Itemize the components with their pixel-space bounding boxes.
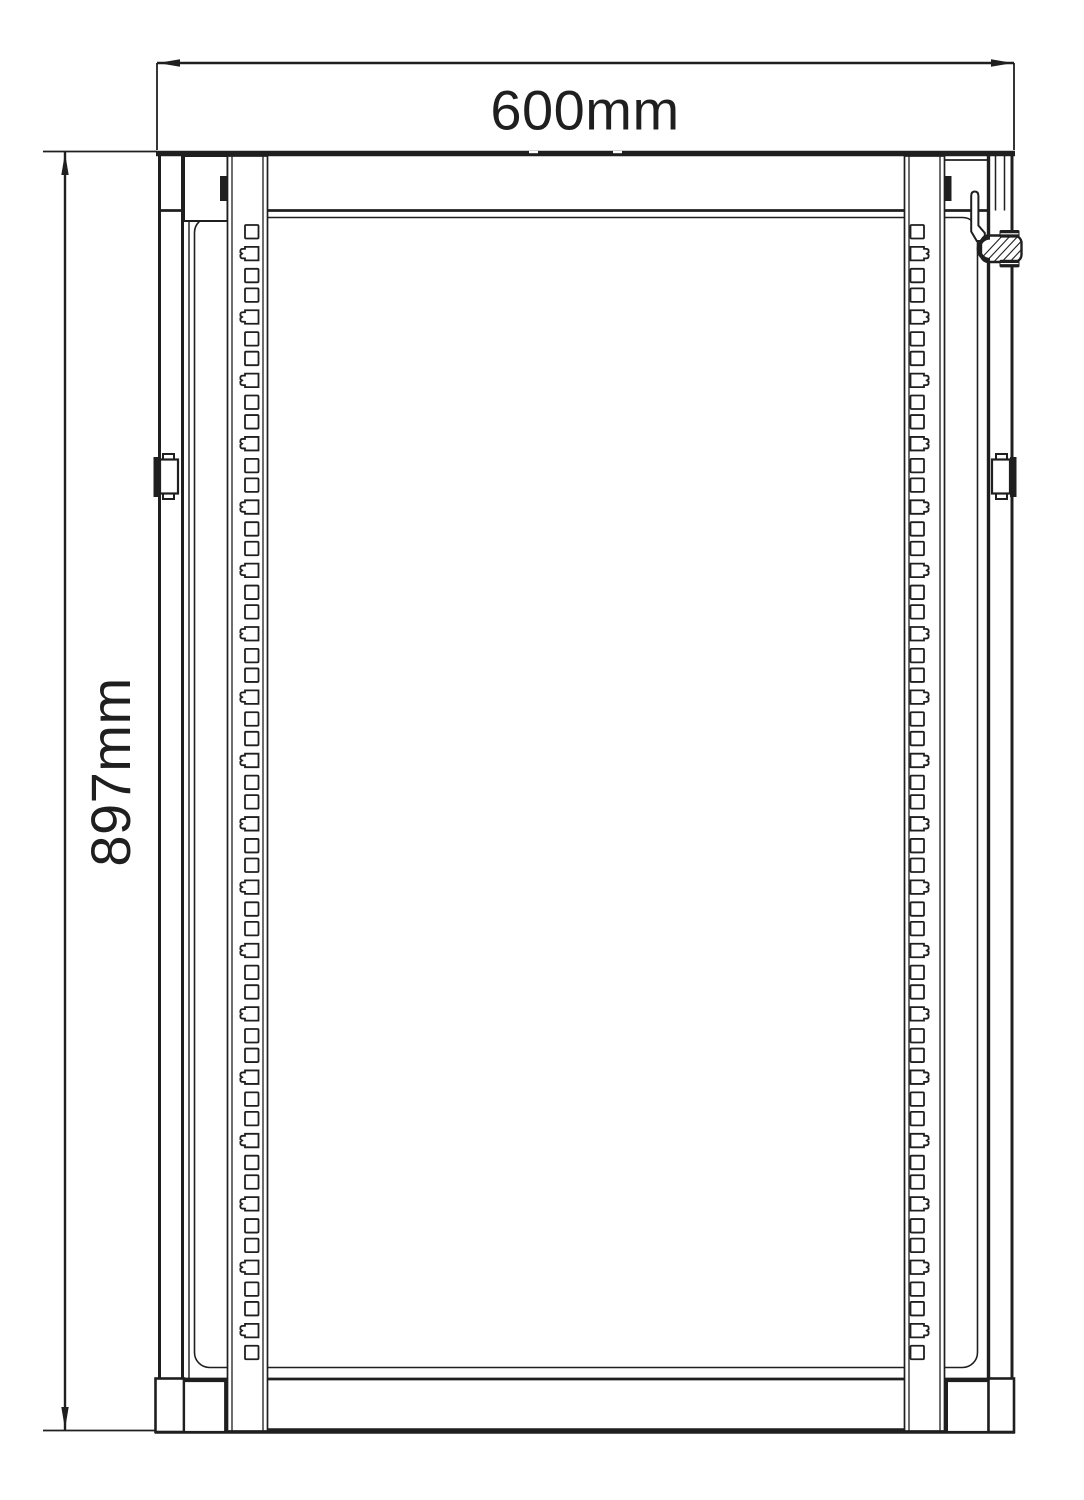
rail-hole: [245, 1175, 259, 1189]
rail-hole-notched: [911, 437, 929, 451]
rail-hole: [911, 1175, 925, 1189]
interior-opening: [195, 218, 978, 1368]
rail-hole: [911, 839, 925, 853]
rack-technical-drawing: 600mm 897mm: [0, 0, 1084, 1500]
rail-hole: [911, 352, 925, 366]
rail-hole-notched: [911, 754, 929, 768]
rack-frame: [155, 151, 1015, 1434]
rail-hole-notched: [240, 1261, 258, 1275]
rail-hole-notched: [911, 690, 929, 704]
rail-hole-notched: [911, 564, 929, 578]
rail-hole-notched: [240, 690, 258, 704]
rail-hole: [911, 712, 925, 726]
top-left-corner-tab: [220, 176, 228, 201]
rail-hole: [245, 795, 259, 809]
hinge-body: [160, 460, 178, 494]
rail-hole: [911, 732, 925, 746]
rail-hole: [911, 966, 925, 980]
rail-hole: [911, 332, 925, 346]
rail-hole: [245, 839, 259, 853]
rail-hole-notched: [240, 1197, 258, 1211]
width-label: 600mm: [490, 79, 679, 142]
rail-hole: [911, 1282, 925, 1296]
rail-hole: [245, 1239, 259, 1253]
rail-hole: [911, 522, 925, 536]
rail-hole: [245, 1156, 259, 1170]
left-mounting-rail: [228, 156, 268, 1431]
left-hinge: [154, 454, 179, 499]
width-arrowhead-left: [158, 59, 180, 66]
rail-hole-notched: [240, 437, 258, 451]
rail-hole: [245, 332, 259, 346]
rail-hole: [245, 1049, 259, 1063]
height-dimension: 897mm: [43, 152, 157, 1431]
rail-hole: [245, 415, 259, 429]
rail-hole: [911, 1239, 925, 1253]
door-latch: [971, 192, 1036, 268]
rail-hole: [245, 225, 259, 239]
bottom-right-foot: [989, 1379, 1015, 1433]
rail-hole-notched: [240, 374, 258, 388]
rack-elevation-page: 600mm 897mm: [0, 0, 1084, 1500]
rail-hole: [911, 459, 925, 473]
rail-hole: [245, 352, 259, 366]
rail-hole: [911, 668, 925, 682]
width-dimension: 600mm: [157, 59, 1014, 150]
rail-hole-notched: [911, 944, 929, 958]
rail-hole-notched: [911, 1261, 929, 1275]
rail-hole: [911, 478, 925, 492]
rail-hole: [245, 859, 259, 873]
rail-hole: [911, 415, 925, 429]
bottom-left-foot: [156, 1379, 185, 1433]
rail-hole: [911, 922, 925, 936]
rail-hole: [245, 985, 259, 999]
rail-hole-notched: [240, 1007, 258, 1021]
rail-hole-notched: [240, 754, 258, 768]
rail-hole-notched: [911, 1070, 929, 1084]
rail-hole: [245, 966, 259, 980]
rail-hole: [245, 649, 259, 663]
rail-hole: [245, 668, 259, 682]
rail-hole-notched: [240, 1134, 258, 1148]
rail-hole: [245, 1092, 259, 1106]
rail-hole-notched: [240, 944, 258, 958]
rail-hole: [245, 902, 259, 916]
bottom-right-corner-joint: [944, 1381, 989, 1432]
rail-hole: [911, 859, 925, 873]
rail-hole: [245, 1302, 259, 1316]
right-mounting-rail: [905, 156, 945, 1431]
rail-hole: [245, 1346, 259, 1360]
rail-hole: [911, 1112, 925, 1126]
rail-hole: [911, 1156, 925, 1170]
rail-hole: [245, 1282, 259, 1296]
rail-hole-notched: [240, 500, 258, 514]
rail-hole: [911, 269, 925, 283]
hinge-body: [992, 460, 1010, 494]
rail-hole: [911, 1049, 925, 1063]
rail-hole: [911, 1029, 925, 1043]
rail-hole: [245, 522, 259, 536]
rail-hole: [911, 542, 925, 556]
rail-hole-notched: [911, 1134, 929, 1148]
rail-hole-notched: [240, 310, 258, 324]
rail-hole-notched: [240, 880, 258, 894]
rail-hole-notched: [911, 500, 929, 514]
rail-hole: [245, 542, 259, 556]
rail-hole-notched: [240, 817, 258, 831]
rail-hole: [245, 288, 259, 302]
bottom-left-corner-joint: [184, 1381, 228, 1432]
rail-hole-notched: [240, 1324, 258, 1338]
rail-hole: [911, 1302, 925, 1316]
rail-hole: [911, 1346, 925, 1360]
latch-hook: [971, 192, 985, 242]
rail-hole: [245, 1029, 259, 1043]
rail-hole: [911, 396, 925, 410]
rail-hole: [245, 712, 259, 726]
rail-hole: [245, 396, 259, 410]
rail-hole-notched: [240, 627, 258, 641]
top-edge-vent-slot: [613, 151, 622, 153]
rail-hole-notched: [911, 310, 929, 324]
rail-hole: [245, 922, 259, 936]
rail-hole-notched: [911, 817, 929, 831]
rail-hole-notched: [911, 247, 929, 261]
rail-hole: [911, 586, 925, 600]
rail-hole: [245, 1112, 259, 1126]
rail-hole: [245, 478, 259, 492]
rail-hole: [911, 225, 925, 239]
rail-hole: [245, 269, 259, 283]
top-edge-vent-slot: [529, 151, 538, 153]
width-arrowhead-right: [991, 59, 1013, 66]
rail-hole: [245, 605, 259, 619]
rail-hole: [911, 1092, 925, 1106]
rail-hole-notched: [911, 374, 929, 388]
rail-hole-notched: [240, 247, 258, 261]
rail-hole: [245, 586, 259, 600]
height-arrowhead-top: [61, 153, 68, 175]
rail-hole-notched: [240, 564, 258, 578]
rail-hole: [245, 776, 259, 790]
rail-hole-notched: [911, 1197, 929, 1211]
rail-hole: [911, 605, 925, 619]
rail-hole: [911, 776, 925, 790]
rail-hole: [911, 985, 925, 999]
rail-hole-notched: [911, 1007, 929, 1021]
rail-hole: [911, 649, 925, 663]
right-hinge: [992, 454, 1017, 499]
rail-hole: [245, 1219, 259, 1233]
rail-hole: [911, 902, 925, 916]
height-label: 897mm: [79, 677, 142, 866]
rail-hole-notched: [911, 1324, 929, 1338]
rail-hole-notched: [911, 627, 929, 641]
rail-hole: [245, 732, 259, 746]
rail-hole: [245, 459, 259, 473]
rail-hole: [911, 288, 925, 302]
rail-hole: [911, 1219, 925, 1233]
height-arrowhead-bottom: [61, 1407, 68, 1429]
rail-hole: [911, 795, 925, 809]
rail-hole-notched: [240, 1070, 258, 1084]
rail-hole-notched: [911, 880, 929, 894]
